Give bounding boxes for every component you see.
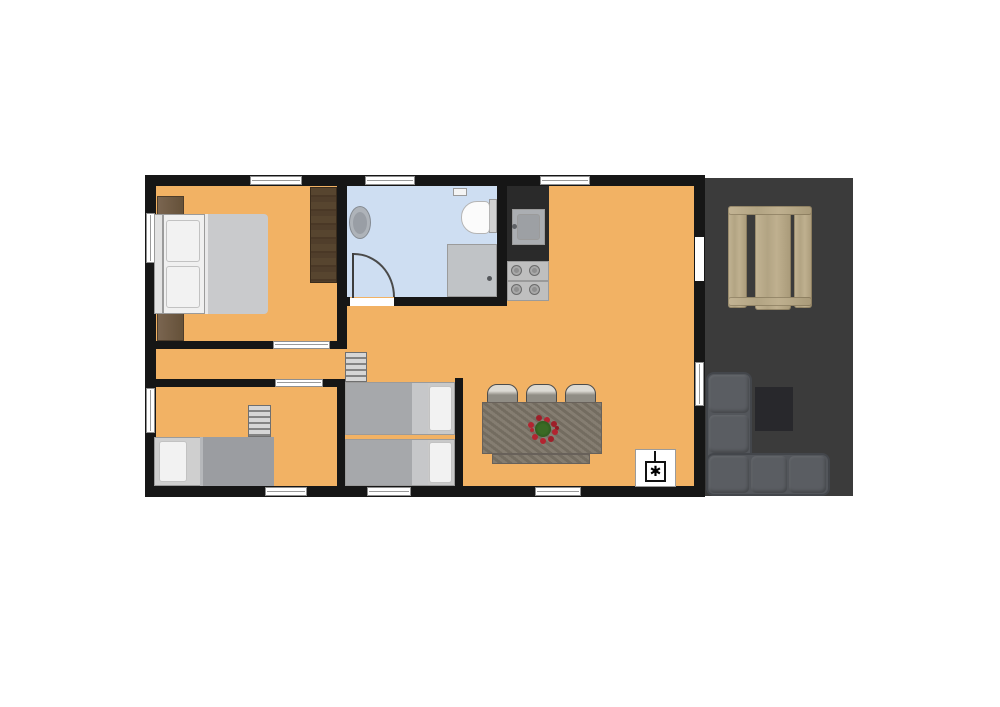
- stove-burner: [529, 284, 540, 295]
- dining-stool: [526, 384, 557, 404]
- picnic-table-crossbar-top: [728, 206, 812, 215]
- bunk-bed-blanket: [346, 440, 412, 485]
- heater-stem: [654, 451, 656, 461]
- picnic-table-left-bench: [728, 208, 747, 308]
- window-bottom-living: [535, 487, 581, 496]
- double-bed-headboard: [154, 214, 163, 314]
- stove-burner: [529, 265, 540, 276]
- entry-door-opening: [695, 237, 704, 281]
- window-right-living: [695, 362, 704, 406]
- picnic-table-top: [755, 206, 791, 310]
- stove-burner: [511, 265, 522, 276]
- single-bed-pillow: [159, 441, 187, 482]
- wall-bathroom-left: [337, 186, 347, 349]
- bunk-bed-mid: [412, 440, 428, 485]
- toilet-tank: [489, 199, 497, 233]
- window-top-bedroom: [250, 176, 302, 185]
- sofa-cushion: [789, 456, 826, 493]
- wall-bathroom-bottom-right: [394, 297, 507, 306]
- bed-pillow: [166, 220, 200, 262]
- dining-table-end: [492, 454, 590, 464]
- kitchen-sink-basin: [517, 214, 540, 240]
- wall-bathroom-bottom-left: [337, 297, 350, 306]
- table-plant-centerpiece: [535, 421, 551, 437]
- double-bed-blanket: [205, 214, 268, 314]
- sofa-cushion: [751, 456, 787, 493]
- kitchen-faucet: [512, 224, 517, 229]
- wall-alcove-right: [455, 378, 463, 486]
- wall-right: [694, 175, 705, 497]
- loft-ladder-bottom-room: [248, 405, 271, 437]
- stove-burner: [511, 284, 522, 295]
- sofa-cushion: [709, 375, 749, 413]
- loft-ladder-living: [345, 352, 367, 382]
- shower-drain: [487, 276, 492, 281]
- bathroom-door-opening: [350, 298, 394, 306]
- bunk-bed-pillow: [429, 442, 452, 483]
- wall-hall-bottom-left: [145, 379, 275, 387]
- stove-divider: [507, 280, 549, 282]
- terrace-side-table: [755, 387, 793, 431]
- bunk-bed-blanket: [346, 383, 412, 434]
- wall-bedroom-bottom-right: [330, 341, 347, 349]
- wall-bathroom-right: [497, 186, 507, 306]
- shower-tray: [447, 244, 497, 297]
- window-bottom-left-room: [265, 487, 307, 496]
- bunk-bed-pillow: [429, 386, 452, 431]
- window-top-bathroom: [365, 176, 415, 185]
- bedroom-door-opening: [273, 341, 330, 349]
- picnic-table-crossbar-bottom: [728, 297, 812, 306]
- bed-pillow: [166, 266, 200, 308]
- wall-top: [145, 175, 705, 186]
- bunk-bed-mid: [412, 383, 428, 434]
- sofa-cushion: [709, 456, 749, 493]
- heater-box: ✱: [645, 461, 666, 482]
- wall-bedroom-bottom-left: [145, 341, 273, 349]
- wardrobe: [310, 187, 337, 283]
- picnic-table-right-bench: [794, 208, 812, 308]
- bottom-room-door-opening: [275, 379, 323, 387]
- window-bottom-alcove: [367, 487, 411, 496]
- dining-stool: [565, 384, 596, 404]
- floor-plan-canvas: ✱: [0, 0, 1000, 707]
- toilet-bowl: [461, 201, 490, 234]
- bathroom-shelf: [453, 188, 467, 196]
- bathroom-sink-basin: [353, 212, 367, 234]
- wall-alcove-left: [337, 383, 345, 486]
- wall-bottom: [145, 486, 705, 497]
- single-bed-blanket: [200, 437, 274, 486]
- sofa-cushion: [709, 415, 749, 453]
- window-top-living: [540, 176, 590, 185]
- window-left-bottom-room: [146, 388, 155, 433]
- dining-stool: [487, 384, 518, 404]
